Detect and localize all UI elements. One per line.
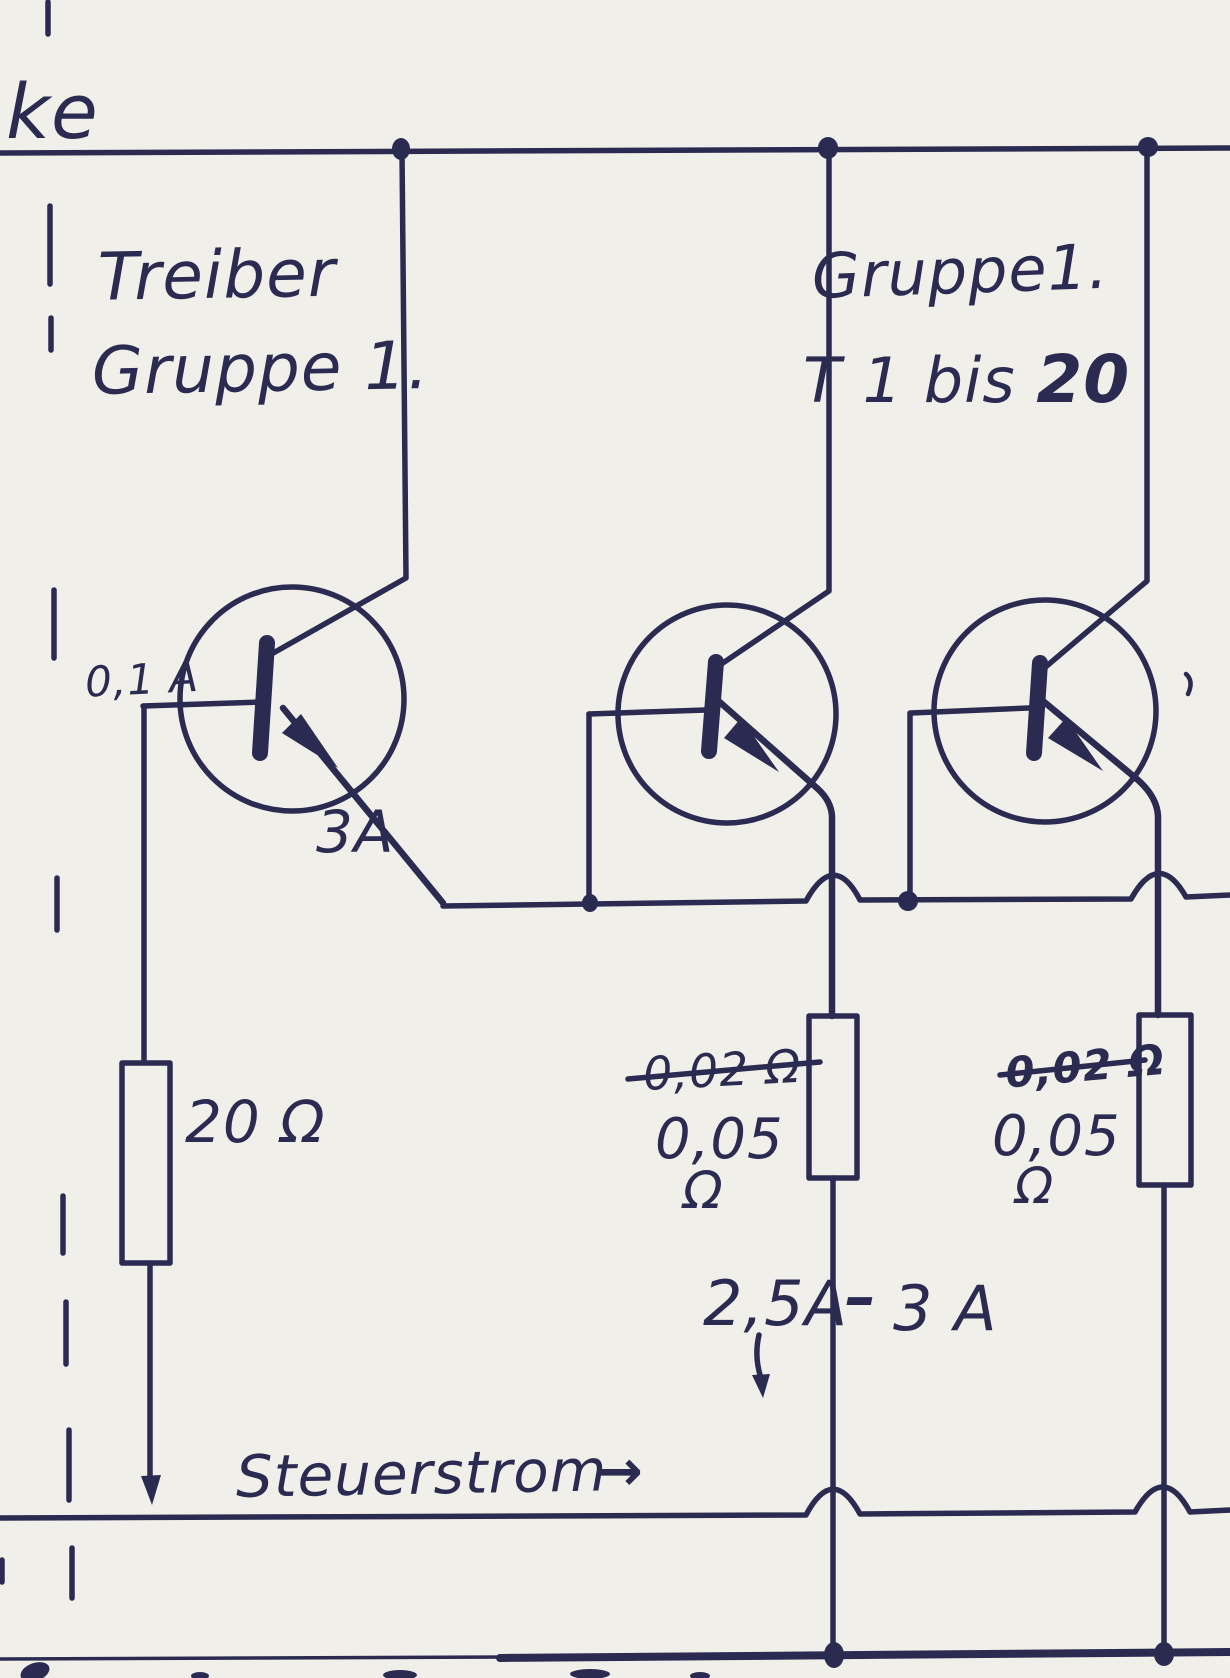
- resistor-body: [809, 1016, 857, 1178]
- driver-label-line1: Treiber: [97, 235, 339, 316]
- shunt-unit: Ω: [681, 1161, 724, 1221]
- group-label-line2: T 1 bis 20: [803, 341, 1130, 418]
- shunt-unit: Ω: [1013, 1157, 1054, 1215]
- group-label-line1: Gruppe1.: [811, 230, 1110, 313]
- dashed-boundary-line: [2, 2, 72, 1598]
- base-lead: [911, 708, 1029, 713]
- current-high: 3 A: [893, 1272, 998, 1345]
- driver-group-label: Treiber Gruppe 1.: [91, 235, 430, 410]
- group-transistor-count: 20: [1036, 341, 1130, 418]
- transistor-base-bar: [260, 643, 267, 753]
- driver-label-line2: Gruppe 1.: [91, 327, 430, 410]
- emitter-resistor-1-labels: 0,02 Ω 0,05 Ω: [628, 1039, 820, 1221]
- driver-resistor-label: 20 Ω: [185, 1088, 326, 1156]
- resistor-body: [122, 1063, 170, 1263]
- current-low: 2,5A: [703, 1267, 848, 1340]
- down-arrowhead: [141, 1475, 161, 1505]
- transistor-circle: [180, 587, 404, 811]
- down-arrow-icon: [752, 1335, 770, 1398]
- corner-label: ke: [6, 67, 99, 156]
- top-rail: [0, 137, 1230, 160]
- cut-off-handwriting: [18, 1658, 710, 1678]
- control-current-label-group: Steuerstrom →: [235, 1436, 644, 1510]
- emitter-wire: [1037, 696, 1158, 1015]
- hand-drawn-schematic: ke Treiber Gruppe 1. Gruppe1. T 1 bis 20…: [0, 0, 1230, 1678]
- control-current-label: Steuerstrom: [235, 1436, 607, 1510]
- base-lead: [589, 710, 706, 714]
- output-group-label: Gruppe1. T 1 bis 20: [803, 230, 1130, 418]
- shunt-value: 0,05: [992, 1104, 1121, 1169]
- emitter-current-annotation: 2,5A – 3 A: [703, 1260, 998, 1398]
- junction-dot: [1154, 1642, 1174, 1666]
- junction-dot: [898, 891, 918, 911]
- junction-dot: [582, 894, 598, 912]
- current-range-dash: –: [845, 1260, 877, 1333]
- output-transistor-1: [589, 151, 836, 1016]
- junction-dot: [824, 1642, 844, 1668]
- transistor-base-bar: [709, 662, 716, 751]
- driver-base-resistor: [122, 706, 170, 1505]
- right-arrow-icon: →: [596, 1439, 644, 1504]
- stray-pen-mark: [1186, 674, 1191, 694]
- bottom-rail: [0, 1642, 1230, 1668]
- transistor-base-bar: [1034, 663, 1040, 753]
- emitter-resistor-2: [1139, 1015, 1191, 1652]
- group-label-prefix: T 1 bis: [803, 344, 1036, 417]
- emitter-wire: [714, 697, 832, 1016]
- base-drive-rail: [443, 873, 1230, 912]
